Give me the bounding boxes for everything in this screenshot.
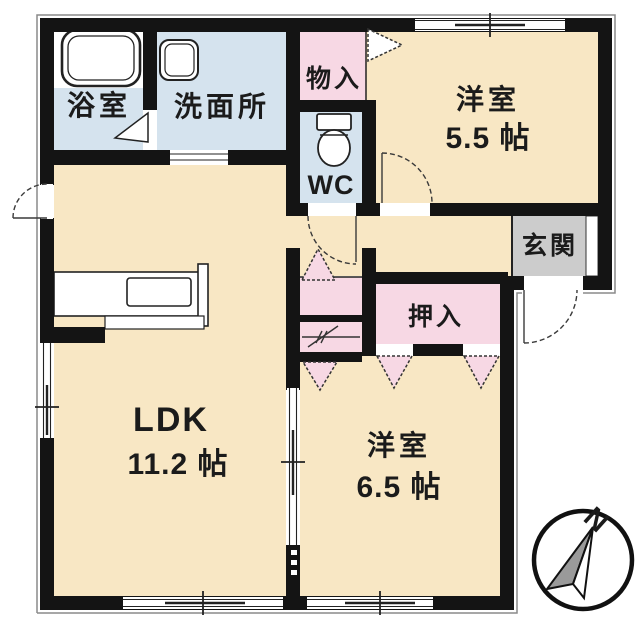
floor-plan: 浴室 洗面所 物入 WC 洋室 5.5 帖 玄関 押入 LDK 11.2 帖 洋… <box>0 0 640 624</box>
door-entrance <box>524 276 583 343</box>
toilet-icon <box>317 114 351 166</box>
ldk-label: LDK <box>54 403 288 437</box>
toilet-label: WC <box>300 172 362 199</box>
washbasin-icon <box>160 40 198 80</box>
sliding-door-washroom <box>170 150 228 165</box>
bathroom-label: 浴室 <box>54 92 144 120</box>
bedroom1-size: 5.5 帖 <box>368 124 608 154</box>
door-ldk-service <box>13 184 53 219</box>
bathtub-icon <box>62 30 140 86</box>
washroom-label: 洗面所 <box>157 93 287 121</box>
closet-label: 押入 <box>374 305 498 330</box>
bedroom2-size: 6.5 帖 <box>300 473 498 503</box>
entrance-label: 玄関 <box>512 234 588 259</box>
storage-label: 物入 <box>298 67 370 92</box>
bedroom1-label: 洋室 <box>368 86 608 114</box>
bedroom2-label: 洋室 <box>300 432 498 460</box>
ldk-size: 11.2 帖 <box>60 450 296 480</box>
